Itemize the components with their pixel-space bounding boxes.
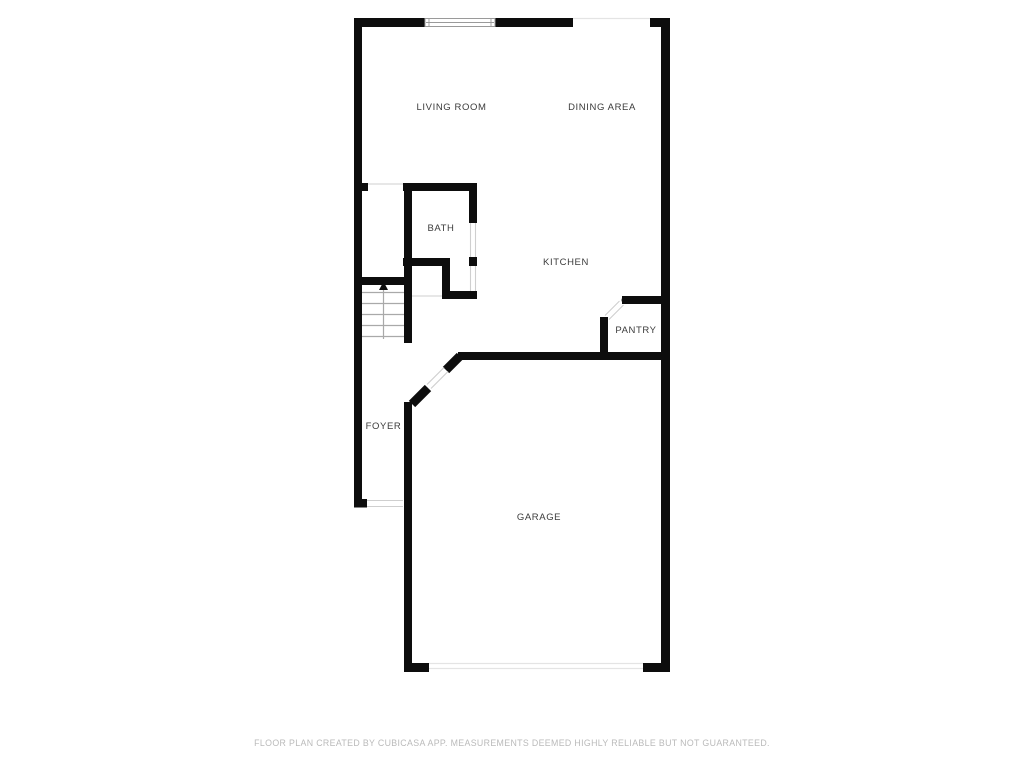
bath-top-wall bbox=[403, 183, 477, 191]
top-wall-left-segment bbox=[354, 18, 425, 27]
garage-left-wall bbox=[404, 402, 412, 672]
pantry-door-line-inner bbox=[609, 305, 624, 320]
room-label-bath: BATH bbox=[427, 223, 454, 234]
room-label-living-room: LIVING ROOM bbox=[417, 102, 487, 113]
room-label-foyer: FOYER bbox=[366, 421, 402, 432]
exterior-walls bbox=[354, 18, 670, 672]
staircase bbox=[354, 277, 411, 339]
floor-plan-drawing: LIVING ROOM DINING AREA BATH KITCHEN PAN… bbox=[0, 0, 1024, 768]
top-wall-mid-segment bbox=[495, 18, 573, 27]
floor-plan-page: LIVING ROOM DINING AREA BATH KITCHEN PAN… bbox=[0, 0, 1024, 768]
foyer-door-line-inner bbox=[431, 372, 448, 389]
garage-top-wall bbox=[458, 352, 670, 360]
garage-bottom-left-corner bbox=[404, 663, 429, 672]
pantry-door-hinge bbox=[601, 317, 608, 324]
room-label-kitchen: KITCHEN bbox=[543, 257, 589, 268]
closet-bottom-wall bbox=[442, 291, 477, 299]
hall-wall-stub bbox=[354, 183, 368, 191]
pantry-door-jamb bbox=[622, 297, 629, 304]
room-label-pantry: PANTRY bbox=[615, 325, 656, 336]
bath-right-corner bbox=[469, 257, 477, 266]
room-label-dining-area: DINING AREA bbox=[568, 102, 636, 113]
garage-bottom-right-corner bbox=[643, 663, 670, 672]
left-exterior-wall bbox=[354, 18, 362, 501]
right-exterior-wall bbox=[661, 18, 670, 672]
room-label-garage: GARAGE bbox=[517, 512, 561, 523]
foyer-diagonal-wall-upper bbox=[446, 356, 460, 370]
pantry-top-wall bbox=[622, 296, 670, 304]
interior-walls bbox=[354, 183, 477, 343]
pantry-door-line-outer bbox=[605, 301, 620, 316]
foyer-door-line-outer bbox=[427, 368, 444, 385]
living-room-window bbox=[425, 19, 495, 27]
left-wall-bottom-cap bbox=[354, 499, 367, 508]
footer-disclaimer: FLOOR PLAN CREATED BY CUBICASA APP. MEAS… bbox=[254, 738, 770, 748]
bath-right-wall-upper bbox=[469, 183, 477, 223]
foyer-diagonal-wall-lower bbox=[412, 388, 428, 404]
